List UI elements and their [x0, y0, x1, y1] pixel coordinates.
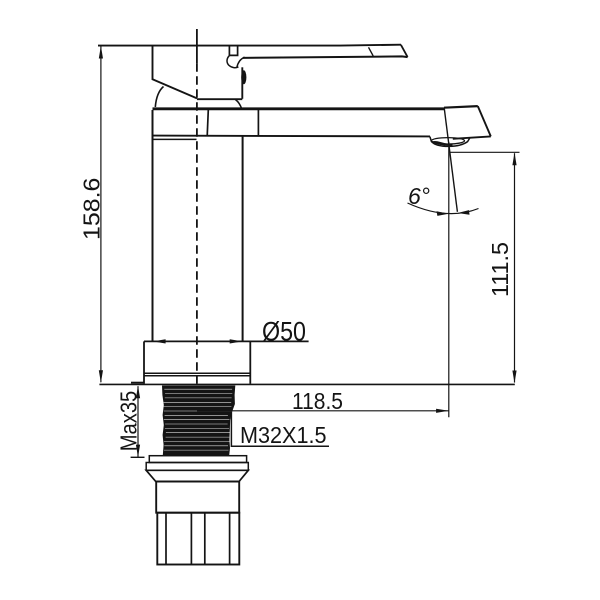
- svg-text:158.6: 158.6: [79, 178, 105, 241]
- svg-text:Max35: Max35: [116, 391, 142, 452]
- svg-text:6°: 6°: [408, 183, 430, 209]
- svg-text:Ø50: Ø50: [262, 317, 306, 347]
- svg-text:118.5: 118.5: [292, 388, 343, 414]
- svg-text:111.5: 111.5: [487, 242, 513, 297]
- svg-text:M32X1.5: M32X1.5: [240, 422, 327, 448]
